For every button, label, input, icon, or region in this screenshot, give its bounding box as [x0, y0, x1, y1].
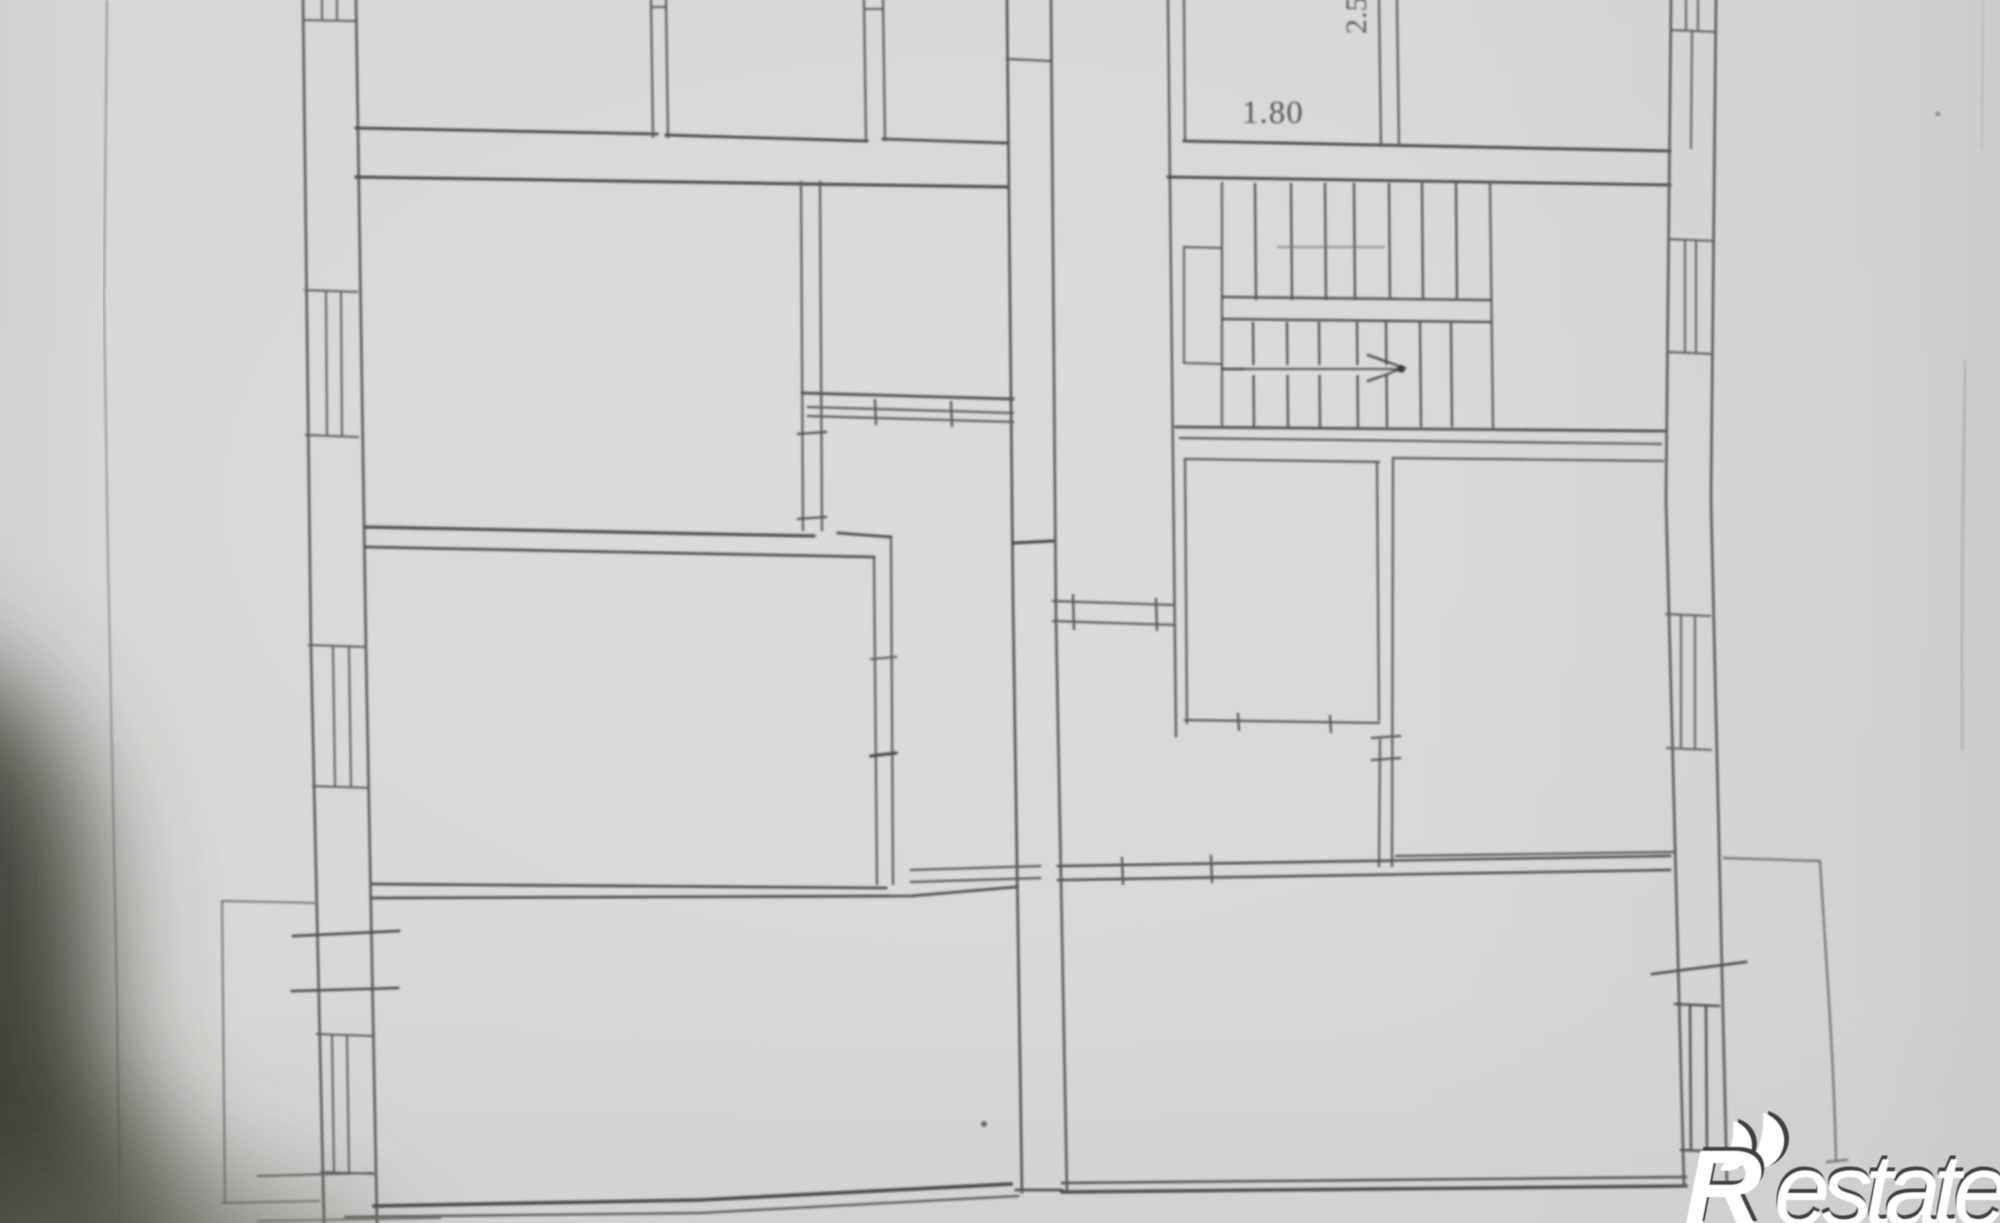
svg-text:2.5: 2.5 — [1340, 0, 1373, 34]
svg-text:estate: estate — [1774, 1135, 2000, 1223]
svg-text:R: R — [1684, 1127, 1762, 1223]
svg-text:1.80: 1.80 — [1242, 95, 1304, 131]
